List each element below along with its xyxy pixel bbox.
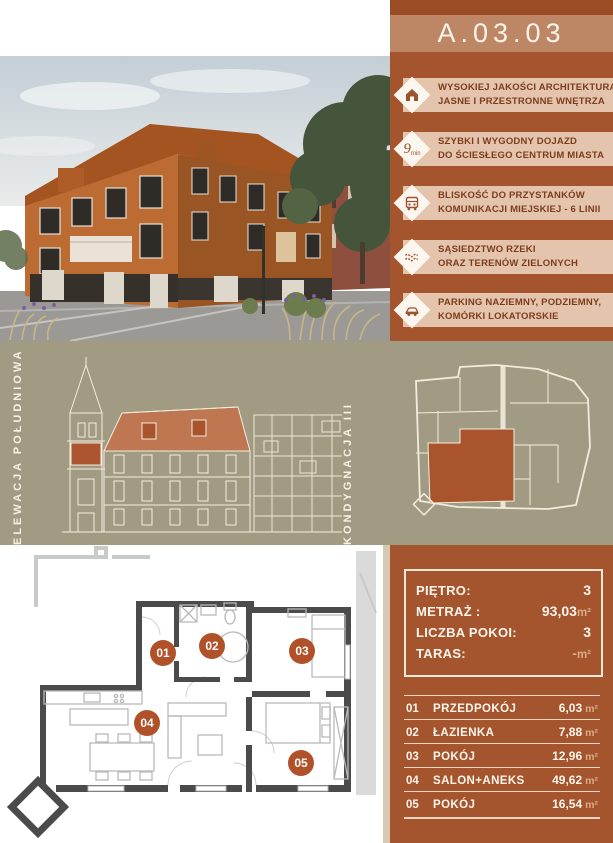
feature-architecture: WYSOKIEJ JAKOŚCI ARCHITEKTURA JASNE I PR…	[390, 78, 613, 112]
plan-badge-03: 03	[295, 644, 309, 658]
feature-line: JASNE I PRZESTRONNE WNĘTRZA	[438, 95, 613, 109]
nine-minutes-icon: 9min	[395, 132, 429, 166]
feature-line: KOMUNIKACJI MIEJSKIEJ - 6 LINII	[438, 203, 600, 217]
right-info-panel: A.03.03 WYSOKIEJ JAKOŚCI ARCHITEKTURA JA…	[390, 0, 613, 341]
unit-code: A.03.03	[437, 18, 565, 49]
room-row-02: 02 ŁAZIENKA 7,88 m²	[404, 719, 600, 743]
building-render-photo	[0, 56, 390, 341]
feature-line: WYSOKIEJ JAKOŚCI ARCHITEKTURA	[438, 81, 613, 95]
panel-top-strip	[390, 0, 613, 15]
elevation-tower	[67, 357, 105, 532]
middle-band: ELEWACJA POŁUDNIOWA	[0, 341, 613, 545]
room-row-04: 04 SALON+ANEKS 49,62 m²	[404, 767, 600, 791]
unit-code-band: A.03.03	[390, 15, 613, 52]
feature-river: SĄSIEDZTWO RZEKI ORAZ TERENÓW ZIELONYCH	[390, 240, 613, 274]
elevation-main-building	[104, 407, 250, 532]
feature-line: ORAZ TERENÓW ZIELONYCH	[438, 257, 578, 271]
feature-line: PARKING NAZIEMNY, PODZIEMNY,	[438, 296, 601, 310]
feature-parking: PARKING NAZIEMNY, PODZIEMNY, KOMÓRKI LOK…	[390, 293, 613, 327]
room-row-01: 01 PRZEDPOKÓJ 6,03 m²	[404, 695, 600, 719]
left-tree	[0, 230, 28, 270]
summary-row-area: METRAŻ : 93,03m²	[416, 603, 591, 621]
room-row-03: 03 POKÓJ 12,96 m²	[404, 743, 600, 767]
summary-box: PIĘTRO: 3 METRAŻ : 93,03m² LICZBA POKOI:…	[404, 569, 603, 677]
feature-line: DO ŚCIESŁEGO CENTRUM MIASTA	[438, 149, 604, 163]
elevation-drawing	[42, 351, 342, 536]
floor-key-plan	[398, 353, 603, 533]
summary-row-floor: PIĘTRO: 3	[416, 582, 591, 600]
room-number-badges: 01 02 03 04 05	[134, 633, 315, 776]
feature-line: KOMÓRKI LOKATORSKIE	[438, 310, 601, 324]
feature-line: SZYBKI I WYGODNY DOJAZD	[438, 135, 604, 149]
apartment-spec-sheet: A.03.03 WYSOKIEJ JAKOŚCI ARCHITEKTURA JA…	[0, 0, 613, 843]
room-row-05: 05 POKÓJ 16,54 m²	[404, 791, 600, 815]
apartment-details-panel: PIĘTRO: 3 METRAŻ : 93,03m² LICZBA POKOI:…	[390, 545, 613, 843]
plan-badge-04: 04	[140, 716, 154, 730]
house-icon	[395, 78, 429, 112]
photo-white-margin	[0, 0, 390, 56]
elevation-new-wing	[254, 415, 342, 532]
summary-row-rooms: LICZBA POKOI: 3	[416, 624, 591, 642]
bus-icon	[395, 186, 429, 220]
plan-badge-02: 02	[205, 639, 219, 653]
neighbour-walls	[34, 548, 150, 607]
river-icon	[395, 240, 429, 274]
room-list: 01 PRZEDPOKÓJ 6,03 m² 02 ŁAZIENKA 7,88 m…	[404, 695, 600, 819]
feature-line: SĄSIEDZTWO RZEKI	[438, 243, 578, 257]
car-icon	[395, 293, 429, 327]
feature-line: BLISKOŚĆ DO PRZYSTANKÓW	[438, 189, 600, 203]
storey-label: KONDYGNACJA III	[342, 341, 354, 545]
feature-transit: BLISKOŚĆ DO PRZYSTANKÓW KOMUNIKACJI MIEJ…	[390, 186, 613, 220]
elevation-label: ELEWACJA POŁUDNIOWA	[12, 341, 24, 545]
highlighted-apartment	[428, 429, 514, 503]
plan-badge-05: 05	[294, 756, 308, 770]
plan-badge-01: 01	[156, 646, 170, 660]
summary-row-terrace: TARAS: -m²	[416, 645, 591, 663]
apartment-floor-plan: 01 02 03 04 05	[0, 545, 390, 843]
feature-commute: 9min SZYBKI I WYGODNY DOJAZD DO ŚCIESŁEG…	[390, 132, 613, 166]
street-lamp	[262, 226, 265, 314]
